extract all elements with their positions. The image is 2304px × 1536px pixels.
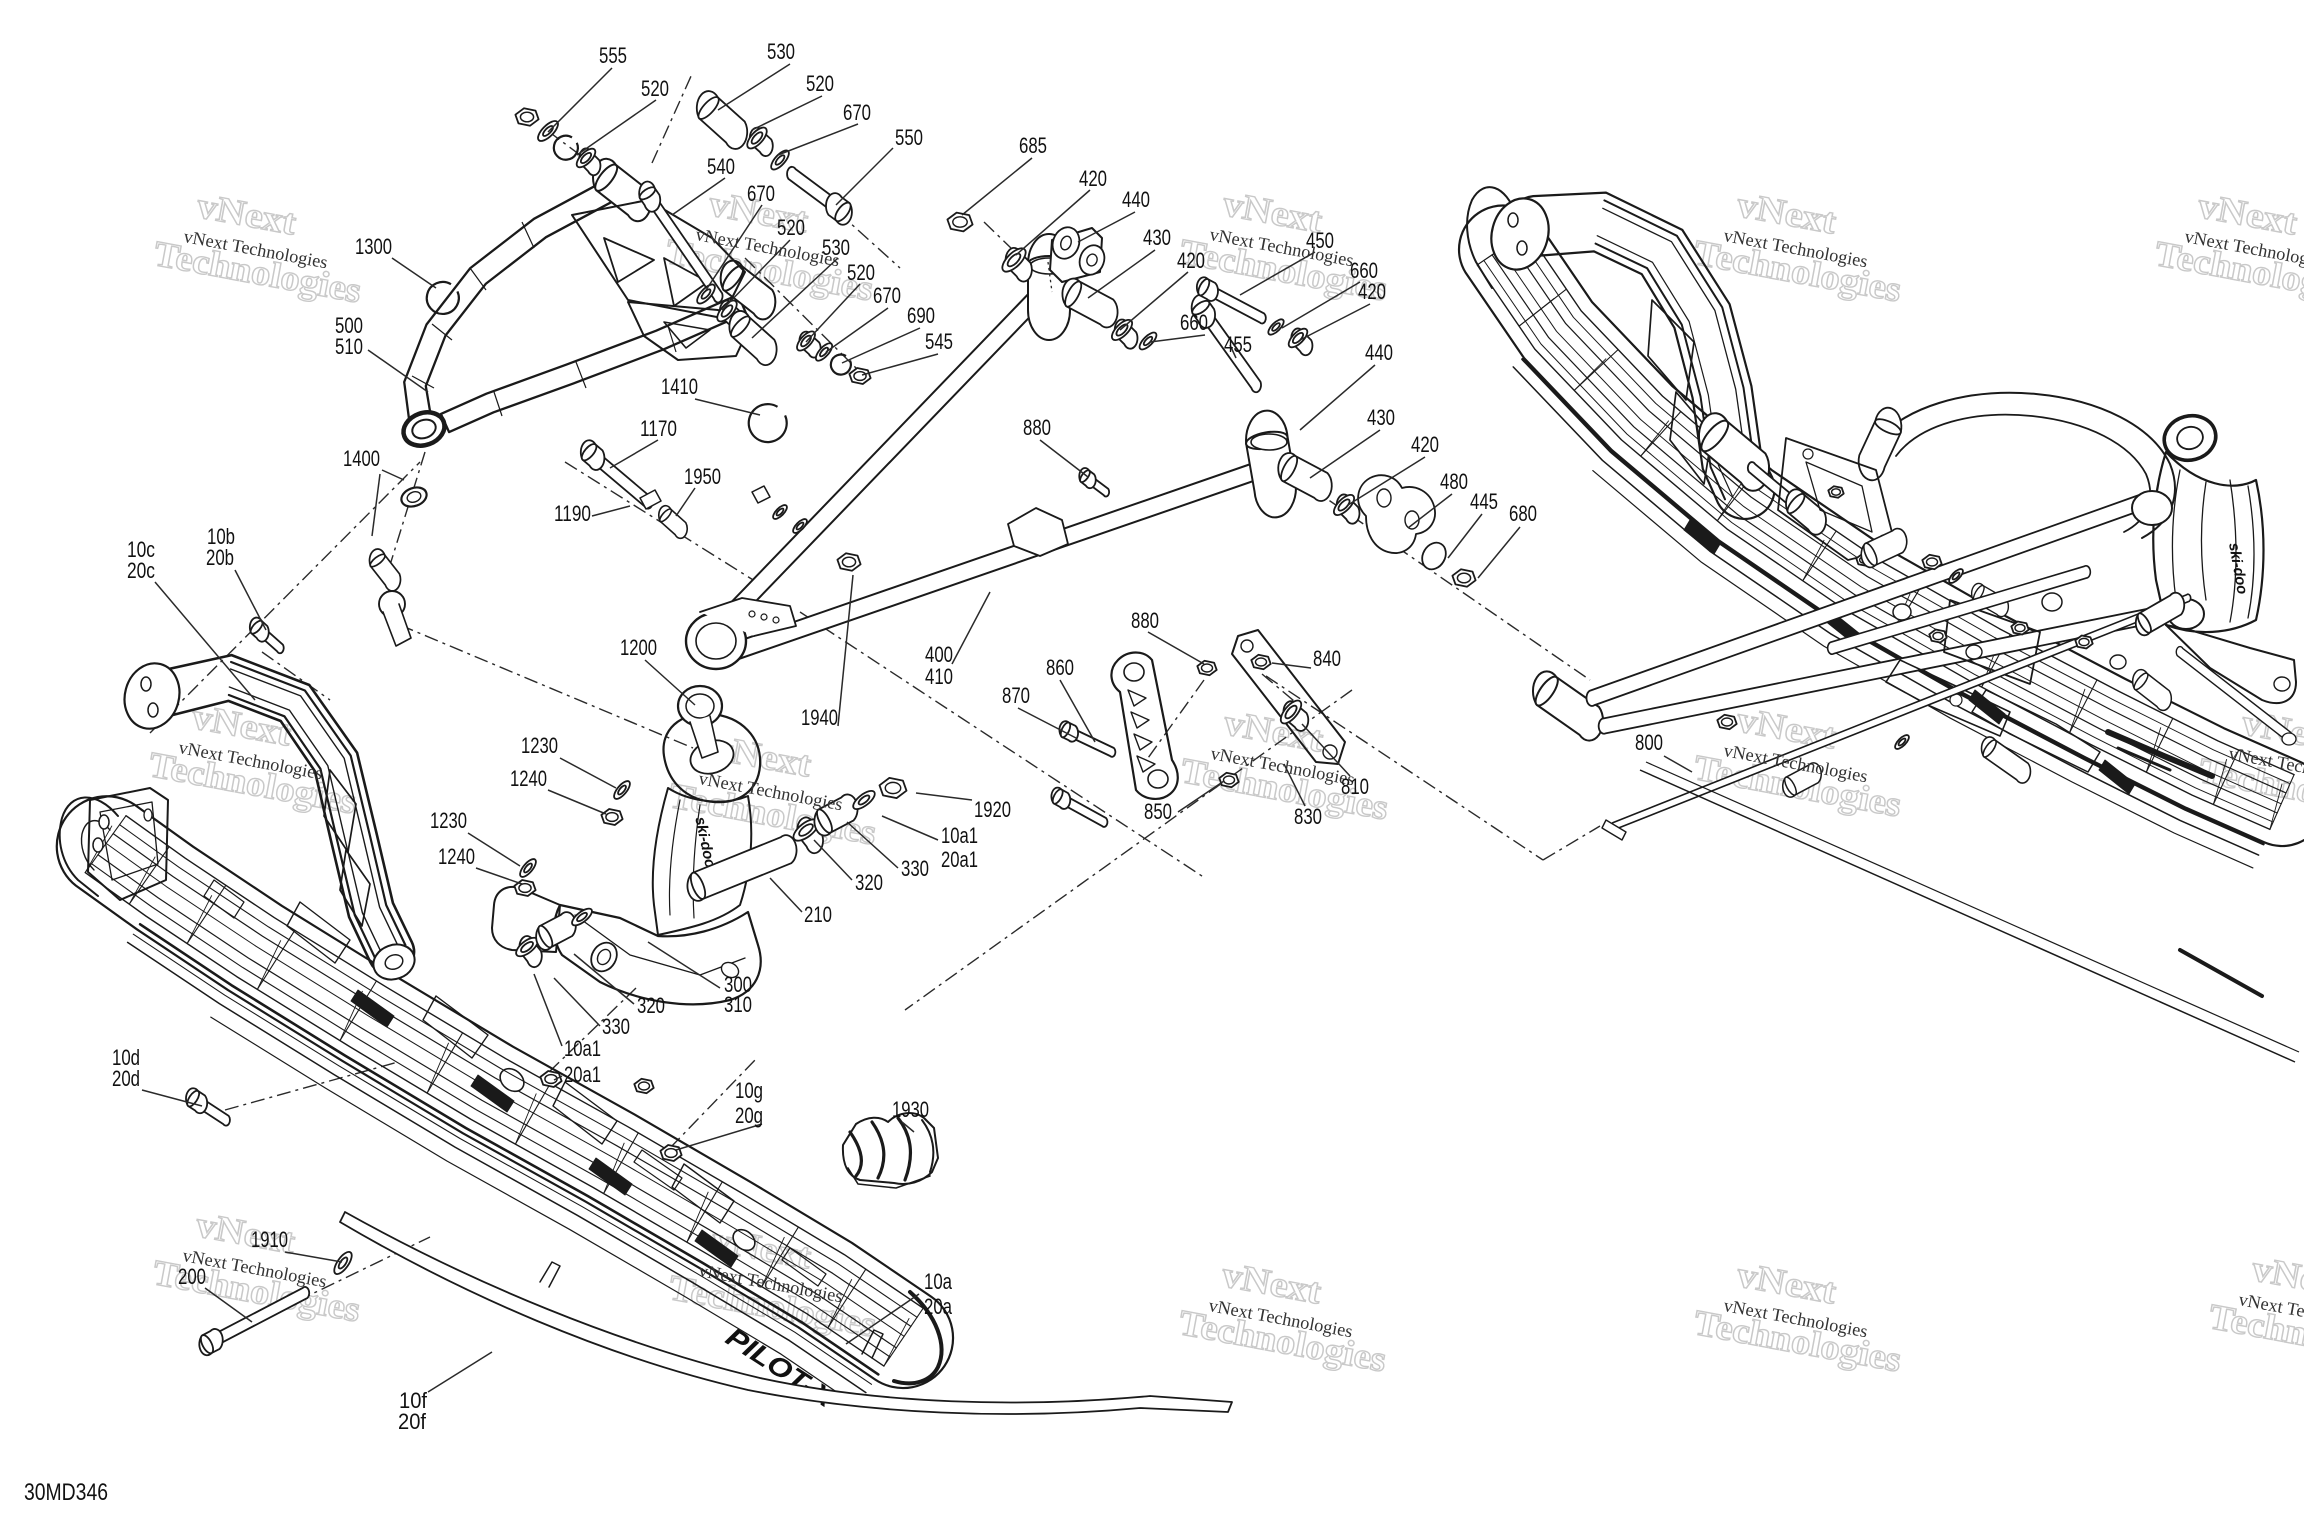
svg-text:1920: 1920 [974,797,1011,822]
svg-text:410: 410 [925,664,953,689]
svg-text:1230: 1230 [521,733,558,758]
svg-text:1170: 1170 [640,416,677,441]
svg-text:20g: 20g [735,1103,763,1128]
svg-text:20c: 20c [127,558,155,583]
svg-text:480: 480 [1440,469,1468,494]
svg-text:440: 440 [1365,340,1393,365]
svg-text:680: 680 [1509,501,1537,526]
svg-text:450: 450 [1306,228,1334,253]
svg-text:520: 520 [806,71,834,96]
svg-text:880: 880 [1131,608,1159,633]
svg-text:685: 685 [1019,133,1047,158]
svg-text:545: 545 [925,329,953,354]
svg-text:430: 430 [1143,225,1171,250]
svg-text:555: 555 [599,43,627,68]
svg-text:20f: 20f [398,1409,427,1434]
svg-text:670: 670 [843,100,871,125]
svg-text:310: 310 [724,992,752,1017]
svg-text:1950: 1950 [684,464,721,489]
svg-text:20a: 20a [924,1294,953,1319]
svg-text:1240: 1240 [438,844,475,869]
svg-text:1190: 1190 [554,501,591,526]
svg-text:840: 840 [1313,646,1341,671]
svg-text:850: 850 [1144,799,1172,824]
svg-text:420: 420 [1079,166,1107,191]
svg-text:830: 830 [1294,804,1322,829]
svg-text:420: 420 [1411,432,1439,457]
svg-text:1230: 1230 [430,808,467,833]
svg-text:1940: 1940 [801,705,838,730]
svg-text:1410: 1410 [661,374,698,399]
svg-text:670: 670 [873,283,901,308]
svg-text:200: 200 [178,1264,206,1289]
svg-text:210: 210 [804,902,832,927]
svg-text:330: 330 [602,1014,630,1039]
svg-text:550: 550 [895,125,923,150]
svg-text:880: 880 [1023,415,1051,440]
svg-text:1400: 1400 [343,446,380,471]
svg-text:20a1: 20a1 [941,847,978,872]
svg-text:1930: 1930 [892,1097,929,1122]
svg-text:520: 520 [847,260,875,285]
svg-text:520: 520 [641,76,669,101]
svg-text:530: 530 [822,235,850,260]
svg-text:320: 320 [637,993,665,1018]
svg-text:445: 445 [1470,489,1498,514]
svg-text:430: 430 [1367,405,1395,430]
svg-text:455: 455 [1224,332,1252,357]
svg-text:20d: 20d [112,1066,140,1091]
svg-text:420: 420 [1358,279,1386,304]
svg-text:690: 690 [907,303,935,328]
svg-text:860: 860 [1046,655,1074,680]
svg-text:330: 330 [901,856,929,881]
svg-text:10a1: 10a1 [564,1036,601,1061]
svg-text:800: 800 [1635,730,1663,755]
svg-text:1240: 1240 [510,766,547,791]
svg-text:530: 530 [767,39,795,64]
svg-text:670: 670 [747,181,775,206]
svg-text:540: 540 [707,154,735,179]
svg-text:20b: 20b [206,545,234,570]
svg-text:510: 510 [335,334,363,359]
svg-text:1200: 1200 [620,635,657,660]
svg-text:10a: 10a [924,1269,953,1294]
svg-text:1910: 1910 [251,1227,288,1252]
svg-text:420: 420 [1177,248,1205,273]
svg-text:320: 320 [855,870,883,895]
svg-text:660: 660 [1180,310,1208,335]
svg-text:440: 440 [1122,187,1150,212]
svg-text:30MD346: 30MD346 [24,1479,108,1506]
svg-text:10a1: 10a1 [941,823,978,848]
svg-text:810: 810 [1341,774,1369,799]
svg-text:870: 870 [1002,683,1030,708]
svg-text:10g: 10g [735,1078,763,1103]
svg-text:520: 520 [777,215,805,240]
svg-text:1300: 1300 [355,234,392,259]
svg-text:20a1: 20a1 [564,1062,601,1087]
